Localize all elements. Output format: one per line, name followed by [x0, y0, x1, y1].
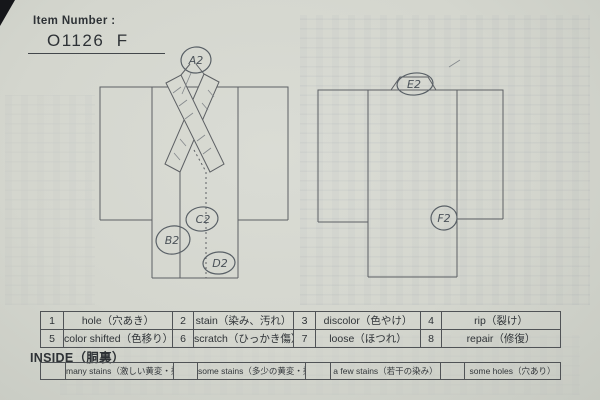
legend-label-cell: discolor（色やけ）	[316, 312, 421, 330]
legend-number-cell: 8	[421, 330, 442, 348]
marker-f2: F2	[429, 204, 458, 231]
inside-checkbox-cell	[306, 363, 331, 380]
condition-legend-table: 1 hole（穴あき） 2 stain（染み、汚れ） 3 discolor（色や…	[40, 311, 561, 348]
inside-checkbox-cell	[174, 363, 198, 380]
legend-number-cell: 1	[41, 312, 64, 330]
legend-label-cell: rip（裂け）	[442, 312, 561, 330]
legend-row: 5 color shifted（色移り） 6 scratch（ひっかき傷） 7 …	[41, 330, 561, 348]
legend-label-cell: color shifted（色移り）	[64, 330, 173, 348]
inside-checkbox-cell	[441, 363, 465, 380]
legend-row: 1 hole（穴あき） 2 stain（染み、汚れ） 3 discolor（色や…	[41, 312, 561, 330]
marker-d2: D2	[202, 251, 235, 275]
inside-label-cell: some stains（多少の黄変・染み）	[198, 363, 306, 380]
marker-label: E2	[407, 78, 421, 91]
inside-checkbox-cell	[41, 363, 66, 380]
marker-c2: C2	[185, 205, 219, 232]
inside-row: many stains（激しい黄変・染み） some stains（多少の黄変・…	[41, 363, 561, 380]
legend-number-cell: 6	[173, 330, 194, 348]
inside-label-cell: some holes（穴あり）	[465, 363, 561, 380]
legend-number-cell: 5	[41, 330, 64, 348]
legend-number-cell: 4	[421, 312, 442, 330]
marker-label: F2	[437, 212, 450, 225]
legend-label-cell: stain（染み、汚れ）	[194, 312, 294, 330]
kimono-front-diagram	[100, 64, 288, 278]
marker-label: C2	[196, 213, 211, 226]
legend-number-cell: 2	[173, 312, 194, 330]
legend-label-cell: hole（穴あき）	[64, 312, 173, 330]
marker-e2: E2	[396, 71, 434, 96]
inspection-sheet: Item Number : O1126 F A2	[0, 0, 600, 400]
marker-label: B2	[165, 234, 180, 247]
legend-number-cell: 7	[294, 330, 316, 348]
marker-b2: B2	[154, 223, 192, 256]
inside-condition-table: many stains（激しい黄変・染み） some stains（多少の黄変・…	[40, 362, 561, 380]
inside-label-cell: a few stains（若干の染み）	[331, 363, 441, 380]
legend-number-cell: 3	[294, 312, 316, 330]
marker-label: A2	[188, 54, 204, 67]
marker-label: D2	[212, 257, 227, 270]
legend-label-cell: scratch（ひっかき傷）	[194, 330, 294, 348]
legend-label-cell: loose（ほつれ）	[316, 330, 421, 348]
legend-label-cell: repair（修復）	[442, 330, 561, 348]
kimono-back-diagram	[318, 60, 503, 277]
inside-label-cell: many stains（激しい黄変・染み）	[66, 363, 174, 380]
